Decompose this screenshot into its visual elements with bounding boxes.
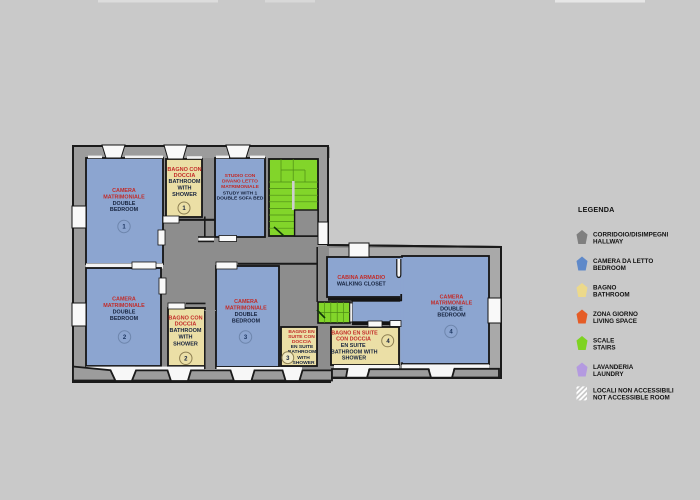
- svg-text:DOUBLE SOFA BED: DOUBLE SOFA BED: [217, 196, 264, 202]
- svg-text:CABINA ARMADIO: CABINA ARMADIO: [337, 275, 385, 281]
- svg-text:SHOWER: SHOWER: [173, 341, 198, 347]
- svg-text:WITH: WITH: [178, 335, 192, 341]
- svg-text:LEGENDA: LEGENDA: [578, 205, 615, 214]
- svg-text:BEDROOM: BEDROOM: [110, 207, 139, 213]
- svg-text:LIVING SPACE: LIVING SPACE: [593, 318, 637, 325]
- svg-text:WALKING CLOSET: WALKING CLOSET: [337, 281, 387, 287]
- svg-text:DOUBLE: DOUBLE: [113, 201, 136, 207]
- svg-text:HALLWAY: HALLWAY: [593, 239, 624, 246]
- svg-text:BAGNO: BAGNO: [593, 285, 617, 292]
- svg-text:BEDROOM: BEDROOM: [232, 318, 261, 324]
- svg-text:STUDIO CON: STUDIO CON: [225, 173, 256, 179]
- svg-text:MATRIMONIALE: MATRIMONIALE: [103, 194, 145, 200]
- svg-text:DIVANO LETTO: DIVANO LETTO: [222, 179, 258, 185]
- svg-text:CAMERA: CAMERA: [112, 297, 136, 303]
- svg-text:SHOWER: SHOWER: [172, 192, 197, 198]
- svg-text:MATRIMONIALE: MATRIMONIALE: [103, 303, 145, 309]
- svg-text:MATRIMONIALE: MATRIMONIALE: [225, 306, 267, 312]
- svg-text:CAMERA: CAMERA: [112, 188, 136, 194]
- svg-text:STUDY WITH 1: STUDY WITH 1: [223, 190, 258, 196]
- svg-text:CORRIDOIO/DISIMPEGNI: CORRIDOIO/DISIMPEGNI: [593, 232, 668, 239]
- svg-text:LAVANDERIA: LAVANDERIA: [593, 364, 634, 371]
- svg-text:BEDROOM: BEDROOM: [437, 313, 466, 319]
- svg-text:CON DOCCIA: CON DOCCIA: [336, 337, 371, 343]
- svg-text:BATHROOM: BATHROOM: [170, 328, 202, 334]
- svg-text:BATHROOM WITH: BATHROOM WITH: [331, 349, 378, 355]
- svg-text:BEDROOM: BEDROOM: [110, 316, 139, 322]
- svg-text:EN SUITE: EN SUITE: [341, 343, 366, 349]
- svg-text:LOCALI NON ACCESSIBILI: LOCALI NON ACCESSIBILI: [593, 388, 674, 395]
- svg-text:BATHROOM: BATHROOM: [593, 292, 630, 299]
- svg-text:BAGNO EN SUITE: BAGNO EN SUITE: [331, 330, 378, 336]
- svg-text:STAIRS: STAIRS: [593, 345, 616, 352]
- svg-text:DOCCIA: DOCCIA: [174, 173, 196, 179]
- svg-text:WITH: WITH: [177, 186, 191, 192]
- svg-text:CAMERA: CAMERA: [234, 299, 258, 305]
- svg-text:NOT ACCESSIBLE ROOM: NOT ACCESSIBLE ROOM: [593, 395, 670, 402]
- svg-text:SCALE: SCALE: [593, 338, 614, 345]
- svg-text:BEDROOM: BEDROOM: [593, 265, 626, 272]
- svg-text:DOUBLE: DOUBLE: [235, 312, 258, 318]
- svg-text:DOCCIA: DOCCIA: [175, 322, 197, 328]
- svg-text:DOUBLE: DOUBLE: [113, 310, 136, 316]
- svg-text:CAMERA DA LETTO: CAMERA DA LETTO: [593, 258, 653, 265]
- svg-text:BAGNO CON: BAGNO CON: [167, 167, 201, 173]
- svg-text:ZONA GIORNO: ZONA GIORNO: [593, 311, 638, 318]
- svg-text:LAUNDRY: LAUNDRY: [593, 371, 624, 378]
- svg-text:BATHROOM: BATHROOM: [169, 179, 201, 185]
- svg-text:MATRIMONIALE: MATRIMONIALE: [221, 184, 259, 190]
- svg-text:SHOWER: SHOWER: [342, 356, 366, 362]
- svg-text:SHOWER: SHOWER: [292, 360, 314, 366]
